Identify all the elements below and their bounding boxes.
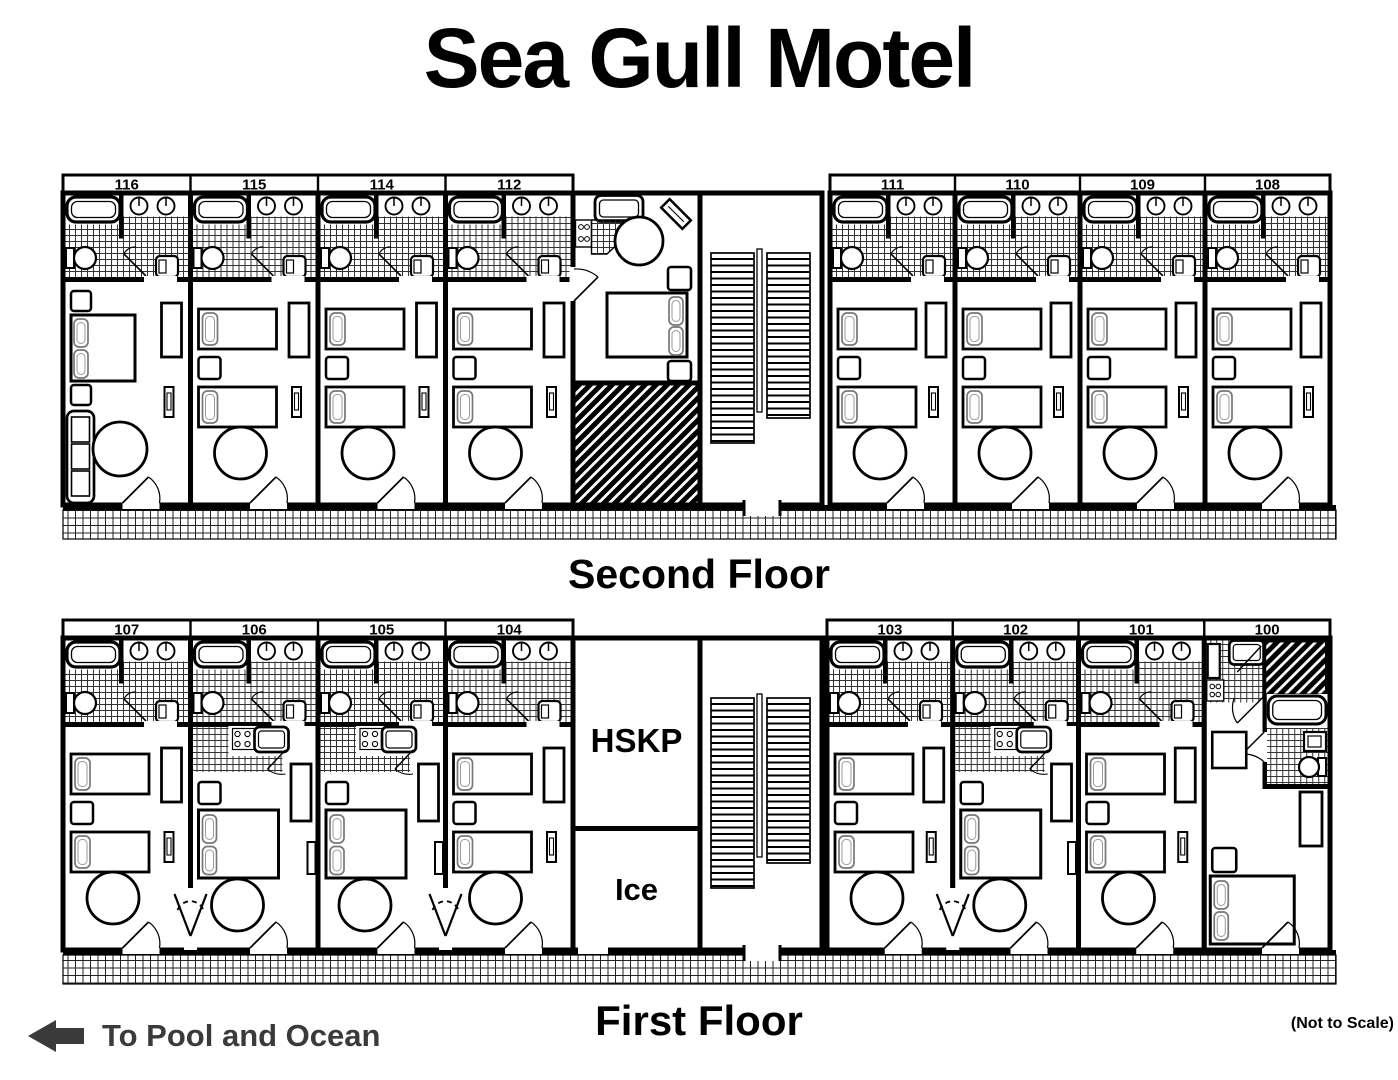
round-table <box>1104 427 1156 479</box>
manager-unit <box>570 193 701 505</box>
toilet-tank <box>830 693 838 713</box>
vanity <box>502 641 571 662</box>
round-table <box>974 879 1026 931</box>
dresser <box>926 303 946 357</box>
toilet <box>1299 757 1319 777</box>
nightstand <box>326 782 348 804</box>
round-table <box>1229 427 1281 479</box>
counter <box>1208 644 1220 678</box>
toilet <box>964 692 986 714</box>
vanity <box>374 196 443 217</box>
toilet-tank <box>956 693 964 713</box>
toilet-tank <box>1082 693 1090 713</box>
toilet-tank <box>1208 248 1216 268</box>
vanity <box>886 196 953 217</box>
nightstand <box>1088 357 1110 379</box>
vanity <box>119 641 188 662</box>
toilet-tank <box>321 248 329 268</box>
nightstand <box>454 802 476 824</box>
toilet <box>457 247 479 269</box>
vanity <box>502 196 571 217</box>
round-table <box>851 872 903 924</box>
site-plan-svg: 1161151141121111101091081071061051041031… <box>0 0 1398 1080</box>
toilet <box>838 692 860 714</box>
toilet-tank <box>66 693 74 713</box>
room-109 <box>1080 193 1205 509</box>
mirror <box>1068 842 1076 874</box>
void-area <box>573 383 700 505</box>
dresser <box>1051 303 1071 357</box>
dresser <box>419 764 439 821</box>
stair-flight <box>767 698 810 863</box>
dresser <box>1052 764 1072 821</box>
toilet <box>966 247 988 269</box>
first-floor-plan: 107106105104103102101100HSKPIce <box>63 620 1336 984</box>
dresser <box>1176 303 1196 357</box>
stair-flight <box>711 698 754 888</box>
nightstand <box>838 357 860 379</box>
toilet <box>202 692 224 714</box>
nightstand <box>71 802 93 824</box>
nightstand <box>1212 848 1236 872</box>
toilet-tank <box>1083 248 1091 268</box>
dresser <box>291 764 311 821</box>
stairs <box>700 638 822 950</box>
vanity <box>247 196 316 217</box>
room-110 <box>955 193 1080 509</box>
round-table <box>470 427 522 479</box>
second-floor-label: Second Floor <box>0 551 1398 598</box>
toilet <box>74 692 96 714</box>
stair-divider <box>757 694 762 857</box>
vanity <box>883 641 950 662</box>
nightstand <box>71 385 91 405</box>
nightstand <box>963 357 985 379</box>
vanity <box>1136 196 1203 217</box>
second-floor-plan: 116115114112111110109108 <box>63 175 1336 539</box>
toilet <box>202 247 224 269</box>
service-rooms: HSKPIce <box>573 638 700 954</box>
toilet-tank <box>66 248 74 268</box>
nightstand <box>835 802 857 824</box>
stair-flight <box>767 253 810 418</box>
nightstand <box>199 782 221 804</box>
room-116 <box>63 193 191 509</box>
toilet <box>457 692 479 714</box>
nightstand <box>1213 357 1235 379</box>
room-105 <box>318 638 446 954</box>
stove <box>576 220 592 247</box>
stairs <box>700 193 822 505</box>
vanity <box>247 641 316 662</box>
round-table <box>854 427 906 479</box>
toilet <box>1091 247 1113 269</box>
mirror <box>435 842 443 874</box>
nightstand <box>668 267 691 290</box>
room-106 <box>191 638 319 954</box>
room-101 <box>1079 638 1205 954</box>
toilet <box>1216 247 1238 269</box>
dresser <box>1301 303 1321 357</box>
walkway <box>63 955 1336 984</box>
dresser <box>544 303 564 357</box>
toilet <box>74 247 96 269</box>
vanity <box>1009 641 1076 662</box>
walkway <box>63 510 1336 539</box>
stair-flight <box>711 253 754 443</box>
ice-label: Ice <box>615 872 658 907</box>
round-table <box>979 427 1031 479</box>
room-108 <box>1205 193 1330 509</box>
left-arrow-icon <box>28 1020 84 1052</box>
vanity <box>1135 641 1202 662</box>
vanity <box>1011 196 1078 217</box>
scale-note: (Not to Scale) <box>1291 1015 1394 1033</box>
room-103 <box>827 638 953 954</box>
dresser <box>417 303 437 357</box>
toilet-tank <box>321 693 329 713</box>
toilet <box>329 692 351 714</box>
dresser <box>924 748 944 802</box>
toilet-tank <box>194 693 202 713</box>
round-table <box>93 422 147 476</box>
dresser <box>162 748 182 802</box>
hskp-label: HSKP <box>591 722 683 759</box>
room-100 <box>1204 638 1332 954</box>
void-area <box>1264 641 1327 696</box>
round-table <box>215 427 267 479</box>
toilet-tank <box>449 248 457 268</box>
floor-plan-page: { "title": "Sea Gull Motel", "floors": [… <box>0 0 1398 1080</box>
toilet-tank <box>449 693 457 713</box>
stove <box>1207 680 1224 701</box>
dresser <box>1300 792 1322 846</box>
nightstand <box>71 291 91 311</box>
dresser <box>1175 748 1195 802</box>
nightstand <box>326 357 348 379</box>
page-title: Sea Gull Motel <box>0 16 1398 100</box>
stair-divider <box>757 249 762 412</box>
dresser <box>289 303 309 357</box>
pool-label: To Pool and Ocean <box>102 1018 380 1054</box>
nightstand <box>668 361 691 381</box>
nightstand <box>1087 802 1109 824</box>
vanity <box>374 641 443 662</box>
round-table <box>87 872 139 924</box>
room-107 <box>63 638 191 954</box>
toilet <box>329 247 351 269</box>
toilet <box>1090 692 1112 714</box>
toilet <box>841 247 863 269</box>
dresser <box>544 748 564 802</box>
dresser <box>162 303 182 357</box>
round-table <box>212 879 264 931</box>
round-table <box>615 217 663 265</box>
vanity <box>1261 196 1328 217</box>
mirror <box>308 842 316 874</box>
toilet-tank <box>958 248 966 268</box>
nightstand <box>199 357 221 379</box>
room-112 <box>446 193 574 509</box>
round-table <box>339 879 391 931</box>
room-114 <box>318 193 446 509</box>
room-115 <box>191 193 319 509</box>
round-table <box>342 427 394 479</box>
room-102 <box>953 638 1079 954</box>
nightstand <box>961 782 983 804</box>
round-table <box>1103 872 1155 924</box>
room-104 <box>446 638 574 954</box>
pool-direction: To Pool and Ocean <box>28 1018 380 1054</box>
nightstand <box>454 357 476 379</box>
square-table <box>1212 732 1246 768</box>
toilet-tank <box>194 248 202 268</box>
toilet-tank <box>833 248 841 268</box>
round-table <box>470 872 522 924</box>
vanity <box>119 196 188 217</box>
room-111 <box>830 193 955 509</box>
